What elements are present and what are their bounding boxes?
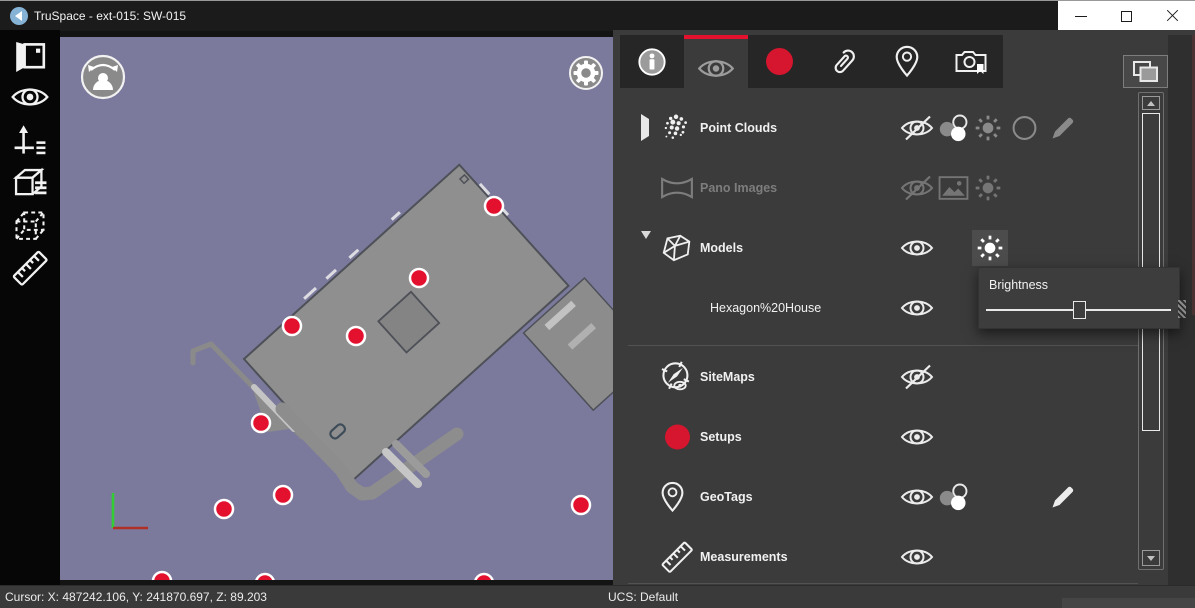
info-icon [639,49,664,74]
row-label: GeoTags [700,490,753,504]
circle-outline-icon[interactable] [1011,115,1038,142]
move-axes-list-icon[interactable] [12,124,48,160]
clipping-box-icon[interactable] [12,208,48,244]
setups-circle-icon [665,425,690,450]
eye-visible-icon[interactable] [900,544,934,570]
axis-indicator [113,493,148,528]
eye-visible-icon[interactable] [900,484,934,510]
row-sitemaps[interactable]: SiteMaps [613,347,1168,407]
row-label: Hexagon%20House [710,301,821,315]
tab-snapshots[interactable] [939,35,1003,88]
visibility-eye-icon[interactable] [10,82,50,112]
ucs-indicator: UCS: Default [608,586,678,608]
row-pano-images[interactable]: Pano Images [613,158,1168,218]
setup-marker[interactable] [256,574,274,580]
snapshots-camera-icon [956,52,985,74]
app-window: TruSpace - ext-015: SW-015 [0,0,1195,608]
appearance-circles-icon[interactable] [938,114,970,142]
setup-marker[interactable] [572,496,590,514]
measurements-ruler-icon [660,540,694,574]
setup-marker[interactable] [410,269,428,287]
row-label: Measurements [700,550,788,564]
tab-setups[interactable] [748,35,812,88]
row-label: SiteMaps [700,370,755,384]
models-brightness-button[interactable] [972,230,1008,266]
setup-marker[interactable] [153,572,171,580]
window-title: TruSpace - ext-015: SW-015 [34,1,186,31]
cursor-coordinates: Cursor: X: 487242.106, Y: 241870.697, Z:… [5,586,267,608]
scrollbar-down-button[interactable] [1142,550,1160,566]
eye-hidden-icon[interactable] [900,364,934,390]
row-setups[interactable]: Setups [613,407,1168,467]
tab-annotations[interactable] [811,35,875,88]
setup-marker[interactable] [283,317,301,335]
point-clouds-icon [660,114,692,142]
expand-expanded-icon[interactable] [641,239,651,257]
setup-marker[interactable] [485,197,503,215]
section-separator [628,583,1138,584]
pano-images-icon [660,175,694,201]
right-panel: Point Clouds Pano Images Models Hexagon%… [613,30,1195,585]
setup-marker[interactable] [252,414,270,432]
brightness-sun-icon [978,236,1003,261]
left-toolbar [0,30,60,585]
close-button[interactable] [1149,1,1195,31]
tab-geotags[interactable] [875,35,939,88]
brightness-slider-handle[interactable] [1073,301,1086,319]
maximize-button[interactable] [1104,1,1150,31]
setup-marker[interactable] [215,500,233,518]
edit-pencil-icon[interactable] [1049,114,1077,142]
section-separator [628,345,1138,346]
edit-pencil-icon[interactable] [1049,483,1077,511]
row-label: Models [700,241,743,255]
eye-visible-icon[interactable] [900,235,934,261]
building-plan [240,149,613,561]
eye-hidden-icon[interactable] [900,175,934,201]
geotags-pin-icon [897,47,918,76]
viewport-settings-button[interactable] [570,57,602,89]
setup-marker[interactable] [274,486,292,504]
brightness-sun-icon[interactable] [973,113,1003,143]
tab-info[interactable] [620,35,684,88]
brightness-sun-icon[interactable] [973,173,1003,203]
models-icon [660,234,692,262]
row-measurements[interactable]: Measurements [613,527,1168,587]
visibility-eye-icon [699,61,732,76]
measure-ruler-icon[interactable] [11,249,49,287]
caret-up-icon [1147,101,1155,106]
caret-down-icon [1147,556,1155,561]
brightness-popup-label: Brightness [989,278,1048,292]
eye-visible-icon[interactable] [900,295,934,321]
panel-scrollbar[interactable] [1138,92,1164,570]
image-icon[interactable] [938,176,969,201]
cube-views-list-icon[interactable] [11,166,49,202]
title-bar: TruSpace - ext-015: SW-015 [0,0,1195,30]
geotags-pin-icon [660,481,685,513]
row-geotags[interactable]: GeoTags [613,467,1168,527]
minimize-button[interactable] [1058,1,1104,31]
row-label: Pano Images [700,181,777,195]
annotations-paperclip-icon [832,48,857,74]
viewport[interactable] [60,37,613,580]
panel-layout-toggle-button[interactable] [1123,55,1168,88]
row-label: Setups [700,430,742,444]
eye-hidden-icon[interactable] [900,115,934,141]
row-point-clouds[interactable]: Point Clouds [613,98,1168,158]
tab-visibility[interactable] [684,35,748,98]
truspace-chevron-icon [10,7,28,25]
project-pano-view-icon[interactable] [12,40,48,74]
popup-resize-grip[interactable] [1178,300,1186,318]
brightness-popup: Brightness [978,267,1180,329]
walk-orbit-avatar-button[interactable] [82,56,124,98]
row-label: Point Clouds [700,121,777,135]
brightness-slider[interactable] [986,301,1171,319]
scrollbar-up-button[interactable] [1142,96,1160,110]
sitemaps-compass-icon [660,361,692,393]
close-icon [1166,10,1179,23]
viewport-canvas[interactable] [60,37,613,580]
panel-tab-strip [620,35,1003,88]
status-bar: Cursor: X: 487242.106, Y: 241870.697, Z:… [0,585,1195,608]
expand-collapsed-icon[interactable] [641,119,649,137]
appearance-circles-icon[interactable] [938,483,970,511]
minimize-icon [1075,16,1087,17]
status-corner-block [1062,598,1195,608]
setups-circle-icon [766,48,793,75]
setup-marker[interactable] [475,574,493,580]
layout-panels-icon [1134,62,1157,81]
eye-visible-icon[interactable] [900,424,934,450]
setup-marker[interactable] [347,327,365,345]
maximize-icon [1121,11,1132,22]
